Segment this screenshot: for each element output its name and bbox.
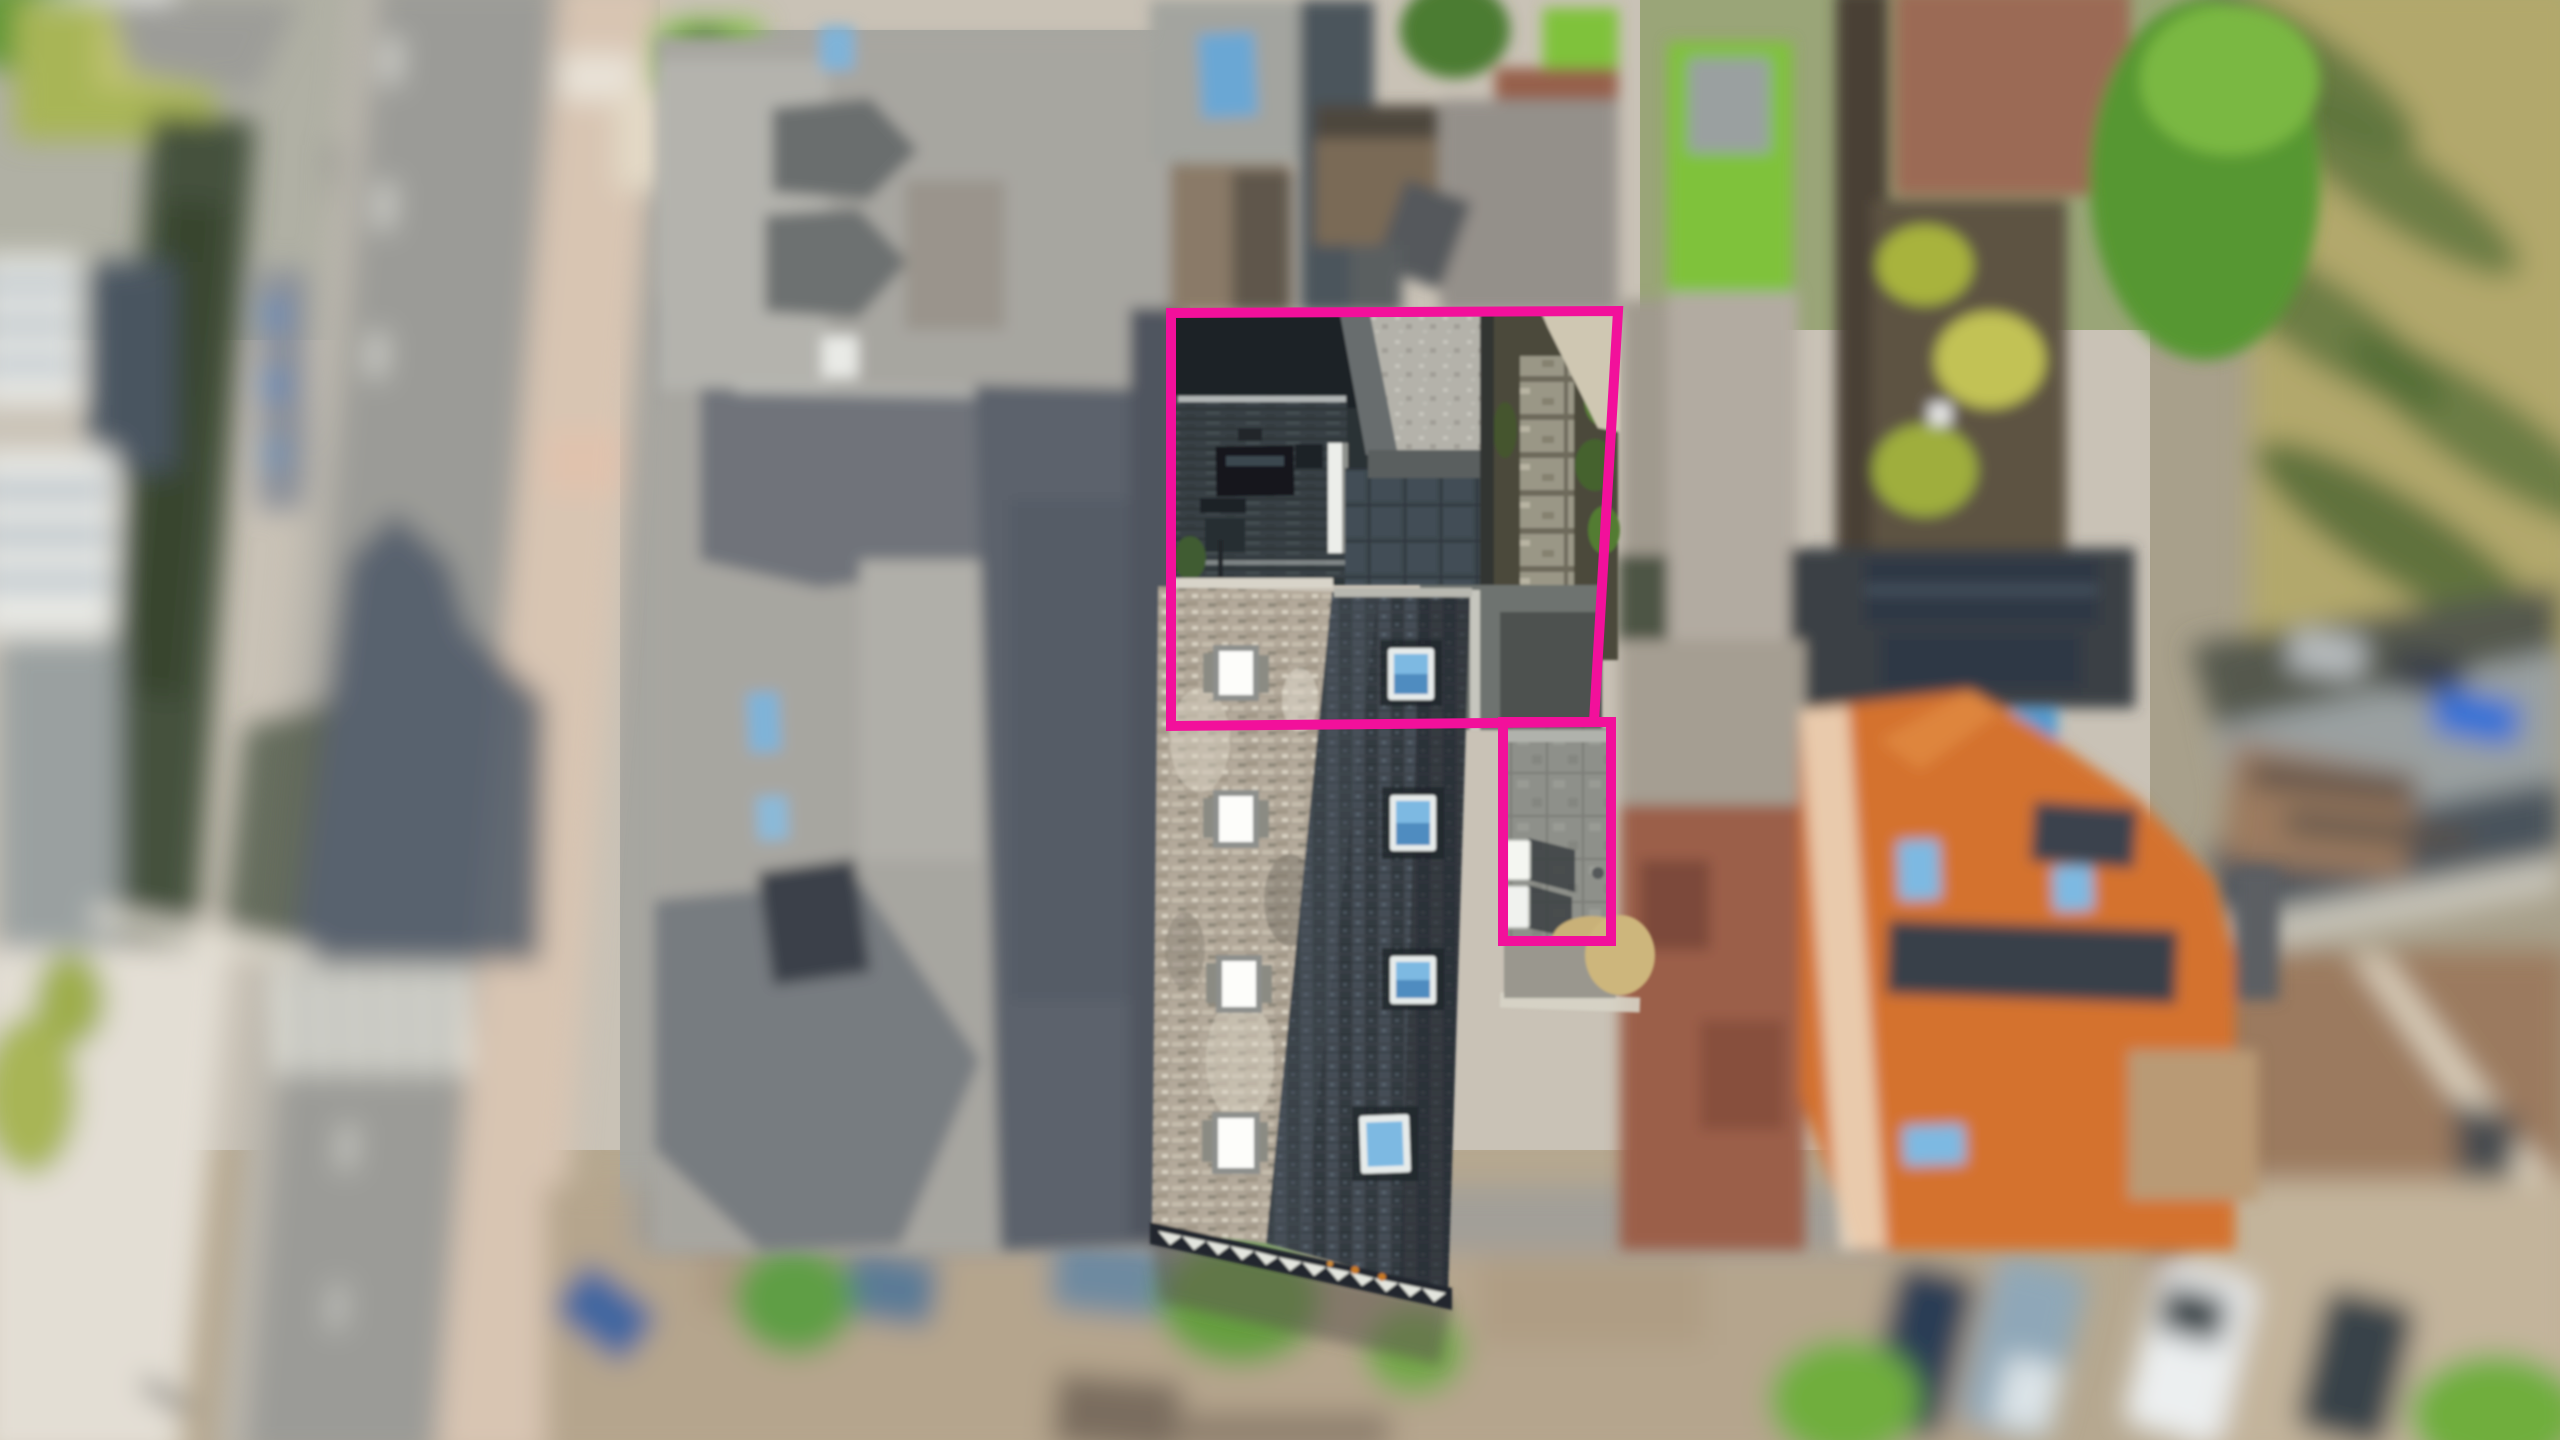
shed-on-lawn (1688, 58, 1770, 153)
solar-panel-seam (1865, 588, 2098, 592)
street-shadow (1180, 1412, 1390, 1440)
solar-panel-complex (758, 859, 871, 986)
aerial-photo-canvas (0, 0, 2560, 1440)
shadow-above-plot (1350, 245, 1402, 313)
garden-bush (1873, 424, 1977, 516)
roof-mottle (1170, 688, 1230, 792)
flat-roof-fascia (1368, 450, 1492, 478)
terrace-railing (1178, 396, 1346, 402)
railing-post (1218, 540, 1223, 583)
complex-light-court (860, 560, 982, 860)
skylight-blue-complex (746, 691, 781, 753)
blue-skylight (1380, 640, 1442, 706)
garden-bush (1877, 225, 1973, 305)
crosswalk-stripe (274, 968, 299, 1075)
terrace-bench (1200, 498, 1246, 513)
rooftop-white-box (1505, 886, 1529, 928)
terrace-plant (1174, 536, 1206, 580)
sidewalk-patch (545, 430, 625, 495)
roof-stripe (0, 360, 75, 370)
rooftop-dot (1592, 867, 1604, 879)
crosswalk-stripe (376, 968, 401, 1075)
tall-trees-light (2140, 5, 2320, 155)
courtyard-brown-shadow (1232, 170, 1292, 313)
garden-bush (1935, 312, 2045, 408)
hedge-east-of-plot (1618, 555, 1676, 645)
solar-strip-on-orange (1886, 920, 2178, 1004)
transition-gray-right (1620, 640, 1805, 810)
skylight-blue-orange-roof (1897, 839, 1941, 900)
roof-stripe (0, 575, 110, 586)
street-mottle (1480, 1260, 1705, 1345)
old-roof-mottle (1700, 1020, 1785, 1130)
lane-dash (367, 333, 385, 378)
window-blue (266, 440, 284, 468)
street-shadow (1052, 1373, 1183, 1440)
annex-parapet (1506, 730, 1611, 742)
skylight-blue-orange-roof (2052, 865, 2094, 911)
crosswalk-stripe (410, 968, 435, 1075)
grass-patch-bottom-left (34, 952, 106, 1048)
skylight-blue-orange-roof (1902, 1124, 1965, 1166)
garden-shrub-small (1493, 402, 1517, 458)
skylight-white-complex (822, 336, 858, 378)
lane-dash (375, 183, 393, 230)
garage-roof-dark (1500, 612, 1602, 730)
terrace-chair (1238, 428, 1262, 441)
gravel-right (1668, 292, 1798, 642)
roof-mottle (1165, 912, 1205, 988)
crosswalk-stripe (308, 968, 333, 1075)
industrial-roof-2 (0, 450, 115, 635)
rooftop-white-box (1506, 840, 1530, 880)
garage-parapet (1470, 590, 1480, 730)
blue-skylight (1352, 1107, 1418, 1181)
aerial-photo (0, 0, 2560, 1440)
blue-skylight (1382, 787, 1444, 859)
roof-top-parapet (1171, 578, 1333, 588)
skylight-blue-complex (820, 26, 854, 70)
lawn-above-plot (1543, 8, 1618, 70)
skylight-blue-complex (756, 795, 789, 841)
complex-dark-roof (700, 388, 1000, 588)
lane-dash (382, 38, 400, 85)
industrial-dark-block (88, 262, 176, 472)
terrace-planter (1205, 518, 1245, 552)
skylight-blue-above (1198, 32, 1258, 119)
terrace-table (1216, 445, 1295, 496)
roof-mottle (1206, 998, 1274, 1122)
terrace-table-top (1226, 456, 1284, 466)
white-chimney (1328, 443, 1342, 553)
tan-roof-right (2128, 1050, 2258, 1200)
blue-skylight (1382, 948, 1444, 1010)
window-blue (266, 300, 284, 330)
complex-courtyard (905, 180, 1005, 330)
gutter-orange-dot (1327, 1261, 1333, 1267)
solar-panel-on-orange (2030, 801, 2138, 868)
crosswalk-stripe (444, 968, 469, 1075)
gutter-orange-dot (1378, 1273, 1386, 1281)
shed-roof-edge (1315, 105, 1439, 139)
terrace-chair (1295, 444, 1323, 468)
window-blue (266, 370, 284, 400)
roof-stripe (0, 485, 110, 496)
white-chimney-dot (1929, 403, 1951, 425)
street-bush (735, 1246, 855, 1354)
solar-panel-row (1881, 633, 2081, 688)
straw-plants (1585, 915, 1655, 995)
roof-stripe (0, 280, 75, 290)
parked-car-slate-blue (842, 1250, 940, 1328)
slate-top-edge (1334, 588, 1472, 597)
crosswalk-stripe (342, 968, 367, 1075)
roof-stripe (0, 530, 110, 541)
dark-strip-right-of-orange (2235, 868, 2279, 1000)
gutter-orange-dot (1351, 1266, 1359, 1274)
roof-stripe (0, 320, 75, 330)
red-terrace-above (1495, 68, 1618, 102)
